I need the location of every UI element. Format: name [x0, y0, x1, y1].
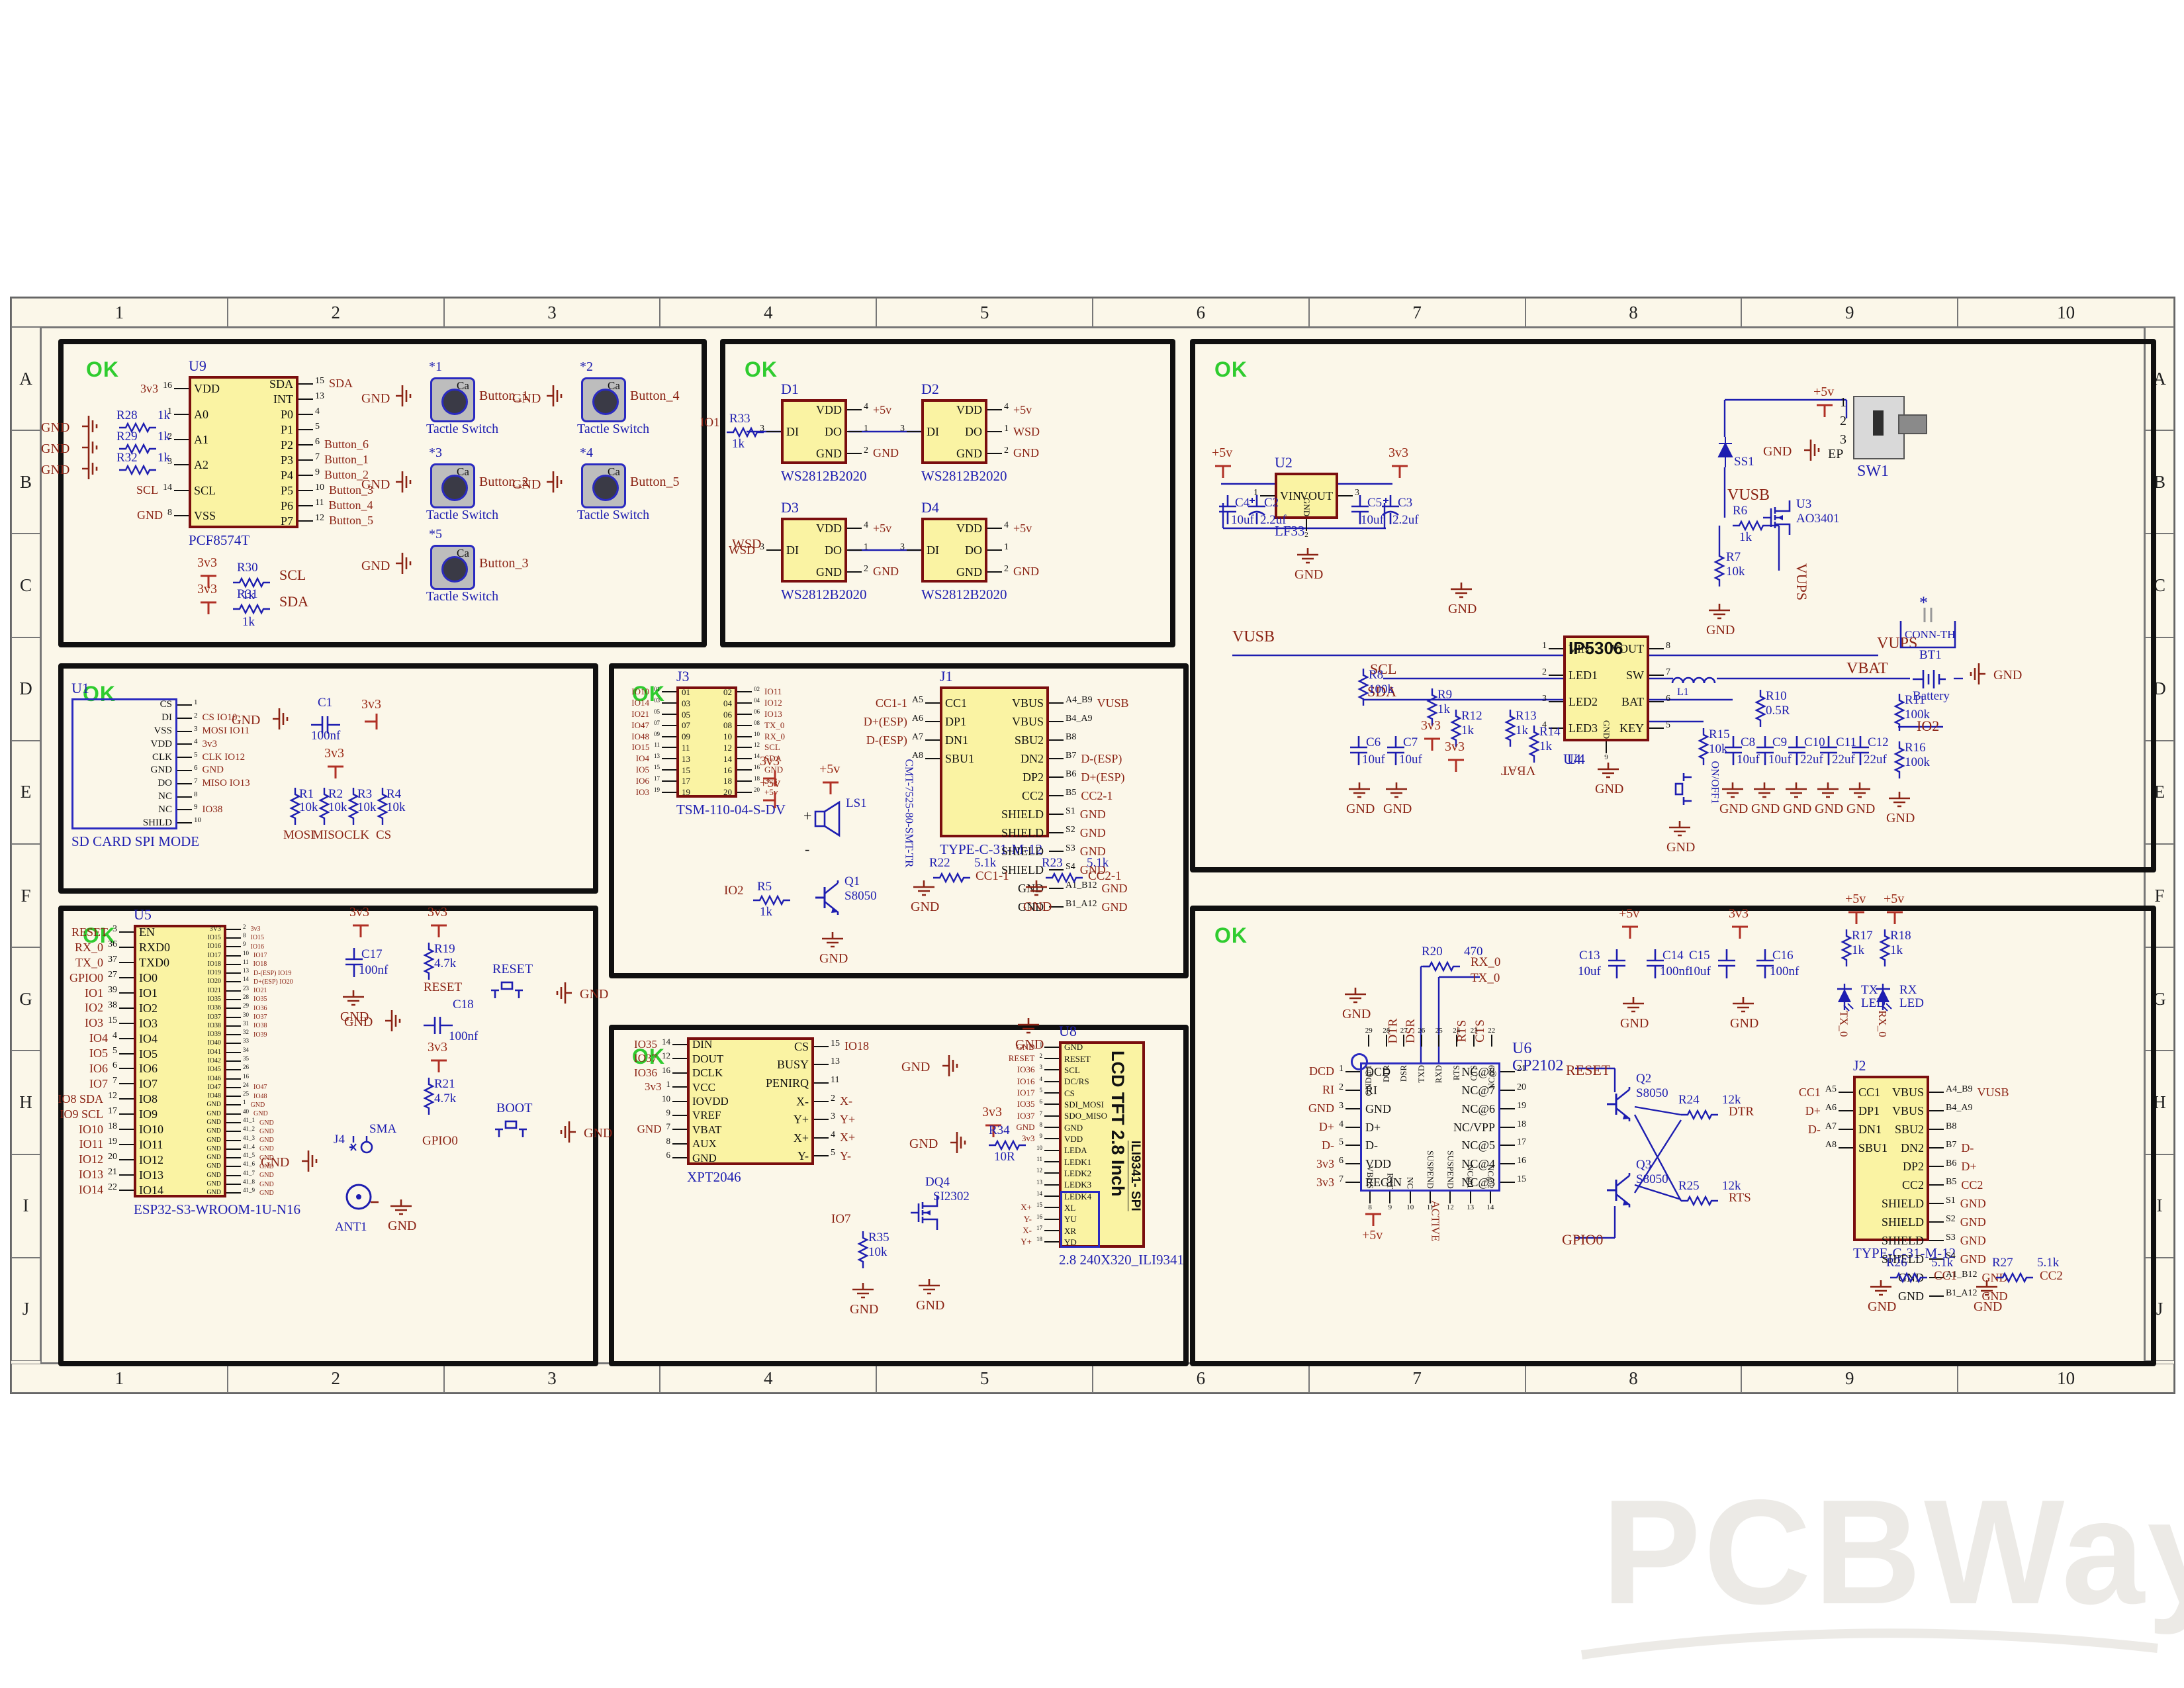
- ic-u4-ip5306-pin-led2: 3: [1437, 696, 1563, 708]
- part-c3-20-label-2-2uf: 2.2uf: [1392, 514, 1419, 526]
- part-c6-38-label-c6: C6: [1366, 736, 1381, 749]
- power-flag-3v3: 3v3: [1388, 446, 1408, 459]
- net-label-vups: VUPS: [1794, 563, 1809, 600]
- ic-u8-lcd-pin-yd: Y+18: [933, 1236, 1059, 1248]
- part-sw1-gnd-icon: [396, 384, 414, 408]
- part-sw3-tactle-switch: Tactle Switch: [426, 508, 498, 522]
- ic-u5-esp32-pin-io14: IO1422: [8, 1184, 134, 1196]
- part-sw1-slide-switch[interactable]: [1853, 396, 1905, 459]
- ic-u6-cp2102-pin-cts: 23: [1469, 1027, 1479, 1062]
- part-io2-77-label-io2: IO2: [724, 884, 744, 897]
- part-btn-88[interactable]: [491, 980, 523, 998]
- ic-j1-typec-pin-gnd: A1_B12GND: [1049, 882, 1175, 894]
- part-c12-52-label-c12: C12: [1868, 736, 1889, 749]
- part-pwr-111[interactable]: [1620, 923, 1640, 939]
- part-sw4-gnd: GND: [512, 478, 541, 491]
- part-r26-129-label-5-1k: 5.1k: [1931, 1256, 1953, 1269]
- part-gnd-30[interactable]: [1804, 438, 1823, 462]
- part-r20-109[interactable]: [1423, 961, 1460, 972]
- part-gnd-1[interactable]: [82, 436, 101, 459]
- part-pwr-34[interactable]: [1446, 756, 1466, 772]
- part-gnd-110-label: GND: [1342, 1008, 1371, 1021]
- part-gnd-2-label: GND: [41, 463, 69, 477]
- ic-j3-header-pin-01: IO1001: [551, 686, 676, 698]
- ic-j1-typec-pin-vbus: A4_B9VUSB: [1049, 697, 1175, 709]
- part-r23-81[interactable]: [1046, 872, 1083, 883]
- part-gnd-82[interactable]: [1024, 880, 1048, 899]
- ok-badge-0: OK: [86, 357, 119, 382]
- part-pwr-21[interactable]: [1390, 462, 1410, 478]
- part-sw2-gnd: GND: [512, 392, 541, 405]
- ic-u6-cp2102-pin-dsr: 27: [1398, 1027, 1409, 1062]
- part-r30-7-label-scl: SCL: [279, 568, 306, 583]
- ic-u1-sdcard-name: SD CARD SPI MODE: [71, 833, 199, 850]
- part-sw2--2: *2: [580, 360, 593, 373]
- ic-xpt2046-pin-vcc: 3v31: [561, 1081, 687, 1093]
- ic-u5-esp32-pin-gnd: 41_9GND: [226, 1187, 352, 1199]
- part-r25-128[interactable]: [1681, 1196, 1718, 1206]
- ic-u9-pcf8574t-pin-p6: 11Button_4: [298, 500, 424, 512]
- net-label-ep: EP: [1828, 447, 1843, 461]
- ic-u5-esp32-pin-rxd0: RX_036: [8, 941, 134, 953]
- ic-u4-ip5306[interactable]: IP5306U41VIN2LED13LED24LED38VOUT7SW6BAT5…: [1563, 635, 1649, 741]
- ic-u6-cp2102-pin-dtr: 28: [1381, 1027, 1392, 1062]
- part-r23-81-label-r23: R23: [1042, 857, 1063, 869]
- part-r13-35[interactable]: [1505, 710, 1516, 747]
- part-l1-43[interactable]: [1672, 673, 1715, 686]
- part-r12-33-label-1k: 1k: [1461, 724, 1474, 737]
- part-pwr-120[interactable]: [1885, 908, 1905, 924]
- part-pwr-119[interactable]: [1846, 908, 1866, 924]
- part-gnd-0[interactable]: [82, 414, 101, 438]
- part-r6-24-label-1k: 1k: [1739, 531, 1752, 543]
- part-pwr-16[interactable]: [1213, 462, 1233, 478]
- ic-j3-header-pin-09: IO4809: [551, 731, 676, 743]
- ic-u8-lcd-pin-ledk2: 12: [933, 1167, 1059, 1179]
- part-r14-36[interactable]: [1529, 726, 1539, 763]
- part-q3-127[interactable]: [1607, 1173, 1636, 1207]
- part-pwr-92[interactable]: [429, 1056, 449, 1072]
- ic-j3-header[interactable]: J3TSM-110-04-S-DVIO100101IO140303IO21050…: [676, 686, 737, 798]
- part-on-off1-46-label-on-off1: ON/OFF1: [1709, 761, 1719, 804]
- part-gnd-22-label: GND: [1295, 568, 1323, 581]
- ic-u5-esp32-ref: U5: [134, 906, 152, 923]
- part-pwr-86[interactable]: [429, 921, 449, 937]
- ic-d3-ws2812b-name: WS2812B2020: [781, 586, 867, 603]
- part-r27-131-label-cc2: CC2: [2040, 1270, 2063, 1282]
- power-flag-+5v: +5v: [1884, 892, 1904, 906]
- part-pwr-73[interactable]: [763, 790, 779, 810]
- ic-u1-sdcard-pin-do: 7MISO IO13: [177, 778, 303, 790]
- part-q1-76-label-q1: Q1: [844, 875, 860, 888]
- part-c7-39-label-10uf: 10uf: [1399, 753, 1422, 766]
- part-gnd-108[interactable]: [942, 1054, 961, 1078]
- net-label--: -: [805, 842, 809, 857]
- part-r21-93[interactable]: [424, 1078, 434, 1115]
- part-j4-96-label-sma: SMA: [369, 1123, 396, 1135]
- part-sw5-tactle-switch: Tactle Switch: [426, 590, 498, 603]
- part-r31-9[interactable]: [233, 604, 270, 614]
- part-rx-124-label-rx: RX: [1899, 984, 1917, 996]
- part-c3-20-label-c3: C3: [1398, 496, 1412, 509]
- ic-u9-pcf8574t-pin-vss: GND8: [63, 510, 189, 522]
- ic-j1-typec-pin-sbu2: B8: [1049, 734, 1175, 746]
- part-gnd-82-label: GND: [1023, 900, 1052, 914]
- ic-u9-pcf8574t-name: PCF8574T: [189, 532, 250, 549]
- ic-u1-sdcard-pin-shild: 10: [177, 817, 303, 829]
- ic-j2-typec-pin-vbus: A4_B9VUSB: [1929, 1086, 2055, 1098]
- ic-u5-esp32-name: ESP32-S3-WROOM-1U-N16: [134, 1201, 300, 1218]
- part-r9-31-label-1k: 1k: [1437, 703, 1450, 716]
- part-rx-124-label-rx-0: RX_0: [1877, 1010, 1888, 1037]
- part-r27-131[interactable]: [1996, 1272, 2033, 1283]
- ic-j3-header-pin-05: IO2105: [551, 708, 676, 720]
- part-u3-27-label-u3: U3: [1796, 498, 1811, 510]
- power-flag-3v3: 3v3: [349, 906, 369, 919]
- power-flag-3v3: 3v3: [760, 755, 780, 768]
- ic-j2-typec[interactable]: J2TYPE-C-31-M-12CC1A5CC1D+A6DP1D-A7DN1A8…: [1853, 1076, 1929, 1241]
- ic-u9-pcf8574t-ref: U9: [189, 357, 206, 375]
- part-q1-76[interactable]: [815, 880, 844, 915]
- part-rx-124-label-led: LED: [1899, 997, 1924, 1009]
- ic-u6-cp2102-pin-d-: D+4: [1234, 1121, 1360, 1133]
- part-sw2-tactle-switch: Tactle Switch: [577, 422, 649, 436]
- ic-xpt2046-pin-dout: IO3712: [561, 1053, 687, 1064]
- part-gnd-78-label: GND: [819, 952, 848, 965]
- part-j4-96[interactable]: [349, 1136, 372, 1158]
- ic-j1-typec-pin-vbus: B4_A9: [1049, 716, 1175, 727]
- part-r31-9-label-sda: SDA: [279, 594, 308, 609]
- part-gnd-114[interactable]: [1621, 997, 1645, 1015]
- part-gnd-80-label: GND: [911, 900, 939, 914]
- part-gnd-118[interactable]: [1731, 997, 1755, 1015]
- ic-u9-pcf8574t[interactable]: U9PCF8574T3v316VDD1A02A13A2SCL14SCLGND8V…: [189, 376, 298, 528]
- part-c13-112[interactable]: [1608, 949, 1625, 978]
- part-conn-62[interactable]: CONN-TH: [1899, 608, 1956, 649]
- power-flag-3v3: 3v3: [361, 698, 381, 711]
- part-gnd-0-label: GND: [41, 421, 69, 434]
- part-r3-70-label-10k: 10k: [357, 801, 377, 814]
- part-r34-106-label-r34: R34: [989, 1124, 1010, 1137]
- ic-j1-typec-pin-dp1: D+(ESP)A6: [814, 716, 940, 727]
- part-gnd-130-label: GND: [1868, 1300, 1896, 1313]
- net-label--: +: [803, 809, 811, 823]
- part-r19-87[interactable]: [424, 943, 434, 980]
- ic-j2-typec-pin-shield: S3GND: [1929, 1235, 2055, 1246]
- part-ls1-74-label-ls1: LS1: [846, 797, 867, 810]
- ic-j1-typec[interactable]: J1TYPE-C-31-M-12CC1-1A5CC1D+(ESP)A6DP1D-…: [940, 686, 1049, 837]
- part-gnd-97-label: GND: [261, 1156, 289, 1169]
- part-sw1-gnd: GND: [361, 392, 390, 405]
- part-r19-87-label-reset: RESET: [424, 981, 462, 994]
- part-r21-93-label-4-7k: 4.7k: [434, 1092, 456, 1105]
- part-gnd-41-label: GND: [1383, 802, 1412, 816]
- part-gnd-132[interactable]: [1975, 1280, 1999, 1299]
- part-r26-129[interactable]: [1890, 1272, 1927, 1283]
- part-gnd-63[interactable]: [1967, 662, 1985, 686]
- part-r16-59[interactable]: [1894, 741, 1905, 778]
- part-gnd-40[interactable]: [1347, 782, 1371, 801]
- part-gnd-103[interactable]: [917, 1279, 941, 1297]
- part-gnd-22[interactable]: [1296, 548, 1320, 567]
- part-r13-35-label-1k: 1k: [1516, 724, 1528, 737]
- part-gnd-99[interactable]: [389, 1199, 413, 1218]
- part-ss1-23-label-ss1: SS1: [1734, 455, 1754, 468]
- part-gnd-85[interactable]: [341, 990, 365, 1009]
- power-flag-+5v: +5v: [1362, 1229, 1383, 1242]
- ic-d2-ws2812b-pin-di: 3: [796, 426, 921, 438]
- ic-xpt2046[interactable]: XPT2046IO3514DINIO3712DOUTIO3616DCLK3v31…: [687, 1037, 814, 1165]
- part-r17-121-label-1k: 1k: [1852, 944, 1864, 957]
- part-r17-121[interactable]: [1841, 929, 1852, 966]
- part-r32-5[interactable]: [119, 465, 156, 475]
- part-r30-7-label-r30: R30: [237, 561, 258, 574]
- ic-d2-ws2812b[interactable]: D2WS2812B20203DI4+5vVDD1WSDDO2GNDGND: [921, 399, 987, 464]
- ic-d4-ws2812b[interactable]: D4WS2812B20203DI4+5vVDD1DO2GNDGND: [921, 518, 987, 583]
- part-c15-116-label-c15: C15: [1689, 949, 1710, 962]
- part-gnd-26[interactable]: [1707, 604, 1731, 622]
- part-r7-25[interactable]: [1714, 549, 1725, 586]
- part-r11-58[interactable]: [1894, 694, 1905, 731]
- part-gnd-89[interactable]: [553, 981, 572, 1005]
- part-gnd-104[interactable]: [1017, 1018, 1040, 1037]
- part-r2-69-label-r2: R2: [328, 788, 343, 800]
- part-gnd-54[interactable]: [1752, 782, 1776, 801]
- part-io1-15-label-io1: IO1: [700, 416, 720, 429]
- part-gnd-101[interactable]: [851, 1283, 875, 1301]
- net-label-1: 1: [1840, 396, 1846, 409]
- schematic-page: PCBWay 12345678910 12345678910 ABCDEFGHI…: [0, 0, 2184, 1688]
- part-c6-38-label-10uf: 10uf: [1362, 753, 1385, 766]
- ic-u9-pcf8574t-pin-p1: 5: [298, 424, 424, 436]
- part-sw2-button-4: Button_4: [630, 389, 679, 402]
- ic-xpt2046-pin-y-: 5Y-: [814, 1150, 940, 1162]
- part-gnd-78[interactable]: [821, 932, 844, 951]
- part-gnd-42-label: GND: [1595, 782, 1623, 796]
- part-gnd-40-label: GND: [1346, 802, 1375, 816]
- part-pwr-115[interactable]: [1730, 923, 1750, 939]
- ic-j1-typec-pin-shield: S2GND: [1049, 827, 1175, 839]
- part-io1-15[interactable]: [727, 427, 764, 438]
- ic-u6-cp2102-pin-suspend: 11: [1425, 1192, 1435, 1227]
- part-c15-116[interactable]: [1718, 949, 1735, 978]
- part-gnd-60[interactable]: [1888, 792, 1911, 810]
- part-r26-129-label-r26: R26: [1886, 1256, 1907, 1269]
- part-gnd-41[interactable]: [1385, 782, 1408, 801]
- part-pwr-29[interactable]: [1815, 401, 1835, 417]
- ic-j3-header-pin-15: IO515: [551, 764, 676, 776]
- part-pwr-32[interactable]: [1422, 735, 1442, 751]
- part-bt1-61[interactable]: [1913, 667, 1946, 691]
- part-pwr-83[interactable]: [351, 921, 371, 937]
- part-pwr-67[interactable]: [326, 763, 345, 778]
- ic-d3-ws2812b-ref: D3: [781, 499, 799, 516]
- part-r32-5-label-r32: R32: [116, 451, 138, 464]
- power-flag-+5v: +5v: [1212, 446, 1232, 459]
- ic-u9-pcf8574t-pin-vdd: 3v316: [63, 383, 189, 395]
- part-c9-49-label-c9: C9: [1772, 736, 1787, 749]
- part-gnd-95-label: GND: [584, 1127, 612, 1140]
- ic-d1-ws2812b-name: WS2812B2020: [781, 468, 867, 485]
- part-r27-131-label-5-1k: 5.1k: [2037, 1256, 2059, 1269]
- ic-u4-ip5306-pin-vout: 8: [1649, 643, 1775, 655]
- part-sw4-gnd-icon: [547, 470, 565, 494]
- ic-j2-typec-pin-dn2: B7D-: [1929, 1142, 2055, 1154]
- part-pwr-66[interactable]: [365, 712, 381, 731]
- part-tx-123[interactable]: [1836, 984, 1853, 1010]
- ic-u5-esp32[interactable]: U5ESP32-S3-WROOM-1U-N16RESET3ENRX_036RXD…: [134, 925, 226, 1197]
- net-label-vbat: VBAT: [1501, 764, 1535, 777]
- part-r30-7[interactable]: [233, 577, 270, 588]
- part-c5-19-label-c5: C5: [1367, 496, 1382, 509]
- ic-j1-typec-pin-shield: S3GND: [1049, 845, 1175, 857]
- part-gnd-97[interactable]: [302, 1149, 320, 1173]
- ic-d4-ws2812b-pin-vdd: 4+5v: [987, 522, 1113, 534]
- part-tx-123-label-tx-0: TX_0: [1838, 1011, 1849, 1037]
- ic-j1-typec-pin-gnd: B1_A12GND: [1049, 901, 1175, 913]
- part-btn-94[interactable]: [495, 1119, 527, 1137]
- part-gnd-91[interactable]: [385, 1009, 404, 1033]
- part-gnd-108-label: GND: [901, 1060, 930, 1074]
- part-gnd-26-label: GND: [1706, 624, 1735, 637]
- ic-xpt2046-pin-x-: 2X-: [814, 1096, 940, 1107]
- part-c7-39-label-c7: C7: [1403, 736, 1418, 749]
- part-pwr-8[interactable]: [199, 598, 218, 614]
- part-gnd-134[interactable]: [1449, 583, 1473, 601]
- part-c14-113-label-c14: C14: [1662, 949, 1684, 962]
- part-gnd-65[interactable]: [273, 707, 291, 731]
- ic-d2-ws2812b-pin-do: 1WSD: [987, 426, 1113, 438]
- part-gnd-55[interactable]: [1784, 782, 1808, 801]
- part-q2-125[interactable]: [1607, 1087, 1636, 1121]
- part-gnd-95[interactable]: [557, 1120, 576, 1144]
- part-ls1-74-label-cmt-7525-80-smt-tr: CMT-7525-80-SMT-TR: [904, 759, 915, 867]
- ic-u1-sdcard-pin-clk: 5CLK IO12: [177, 751, 303, 763]
- part-sw3--3: *3: [429, 446, 442, 459]
- part-r31-9-label-1k: 1k: [242, 616, 255, 628]
- part-gnd-42[interactable]: [1596, 763, 1620, 781]
- part-r35-100-label-r35: R35: [868, 1231, 889, 1244]
- ic-u6-cp2102-pin-rxd: 25: [1433, 1027, 1444, 1062]
- part-r10-44[interactable]: [1755, 690, 1766, 727]
- part-r18-122[interactable]: [1880, 929, 1890, 966]
- part-sw3-gnd: GND: [361, 478, 390, 491]
- ic-j2-typec-pin-dp2: B6D+: [1929, 1160, 2055, 1172]
- ok-badge-7: OK: [1214, 923, 1248, 948]
- net-label-3: 3: [1840, 433, 1846, 446]
- ic-xpt2046-name: XPT2046: [687, 1169, 741, 1186]
- part-gnd-2[interactable]: [82, 457, 101, 481]
- part-gnd-47[interactable]: [1668, 821, 1692, 839]
- ic-xpt2046-pin-gnd: 6: [561, 1152, 687, 1164]
- ic-d4-ws2812b-ref: D4: [921, 499, 939, 516]
- part-gnd-132-label: GND: [1974, 1300, 2002, 1313]
- ic-d2-ws2812b-pin-gnd: 2GND: [987, 447, 1113, 459]
- ic-u2-lf33-ref: U2: [1275, 454, 1293, 471]
- part-r23-81-label-5-1k: 5.1k: [1087, 857, 1109, 869]
- power-flag-3v3: 3v3: [1729, 907, 1749, 920]
- ic-u9-pcf8574t-pin-p3: 7Button_1: [298, 454, 424, 466]
- ic-u2-lf33[interactable]: U2LF331VIN3VOUT2GND: [1275, 473, 1338, 519]
- part-pwr-133[interactable]: [1363, 1210, 1383, 1226]
- part-r10-44-label-r10: R10: [1766, 690, 1787, 702]
- part-gnd-53[interactable]: [1721, 782, 1745, 801]
- ic-u6-cp2102-pin-nc-vpp: 18: [1500, 1121, 1626, 1133]
- ic-u1-sdcard[interactable]: U1SD CARD SPI MODE1CS2CS IO10DI3MOSI IO1…: [71, 698, 177, 829]
- part-gnd-53-label: GND: [1719, 802, 1748, 816]
- part-ls1-74[interactable]: [813, 801, 843, 837]
- part-io2-77-label-1k: 1k: [760, 906, 772, 918]
- ic-u9-pcf8574t-pin-scl: SCL14: [63, 485, 189, 496]
- part-gnd-57[interactable]: [1848, 782, 1872, 801]
- part-gnd-54-label: GND: [1751, 802, 1780, 816]
- part-r29-4-label-r29: R29: [116, 430, 138, 443]
- part-ss1-23[interactable]: [1718, 437, 1733, 467]
- part-io1-15-label-r33: R33: [729, 412, 751, 425]
- part-gnd-55-label: GND: [1783, 802, 1811, 816]
- part-rx-124[interactable]: [1874, 984, 1891, 1010]
- ic-u5-esp32-pin-io0: GPIO027: [8, 972, 134, 984]
- part-gnd-107[interactable]: [950, 1131, 969, 1154]
- ic-u6-cp2102[interactable]: U6CP2102DCD1DCDRI2RIGND3GNDD+4D+D-5D-3v3…: [1360, 1062, 1500, 1192]
- power-flag-+5v: +5v: [1619, 907, 1639, 920]
- part-u3-27[interactable]: [1763, 500, 1792, 535]
- button-label-BOOT: BOOT: [496, 1102, 532, 1115]
- part-r16-59-label-100k: 100k: [1905, 756, 1930, 769]
- part-pwr-75[interactable]: [821, 778, 841, 794]
- ic-j3-header-pin-02: 02IO11: [737, 686, 863, 698]
- ic-u5-esp32-pin-io5: IO55: [8, 1048, 134, 1060]
- part-sw3-gnd-icon: [396, 470, 414, 494]
- part-r3-70-label-clk: CLK: [344, 829, 369, 841]
- part-r19-87-label-r19: R19: [434, 943, 455, 955]
- ic-u8-lcd[interactable]: U82.8 240X320_ILI9341LCD TFT 2.8 InchILI…: [1059, 1041, 1145, 1248]
- part-gnd-80[interactable]: [912, 880, 936, 899]
- part-r24-126-label-dtr: DTR: [1729, 1105, 1754, 1118]
- part-q1-76-label-s8050: S8050: [844, 890, 877, 902]
- part-r8-37[interactable]: [1358, 669, 1369, 706]
- part-r28-3-label-1k: 1k: [158, 409, 170, 422]
- ic-u6-cp2102-pin-nc@9: 22: [1486, 1027, 1497, 1062]
- part-r15-45[interactable]: [1698, 728, 1709, 765]
- part-io2-77[interactable]: [753, 895, 790, 906]
- svg-text:CONN-TH: CONN-TH: [1905, 628, 1956, 641]
- part-r22-79[interactable]: [933, 872, 970, 883]
- part-gnd-56[interactable]: [1816, 782, 1840, 801]
- ic-u5-esp32-pin-io2: IO238: [8, 1002, 134, 1014]
- part-q3-127-label-q3: Q3: [1636, 1158, 1651, 1171]
- part-gnd-104-label: GND: [1015, 1038, 1044, 1051]
- ic-xpt2046-pin-din: IO3514: [561, 1039, 687, 1051]
- part-r34-106[interactable]: [989, 1140, 1026, 1150]
- part-c4-17-label-c4: C4: [1235, 496, 1250, 509]
- part-r35-100[interactable]: [858, 1231, 868, 1268]
- part-gnd-130[interactable]: [1869, 1280, 1893, 1299]
- ic-j2-typec-pin-sbu2: B8: [1929, 1123, 2055, 1135]
- part-r24-126[interactable]: [1681, 1109, 1718, 1120]
- ic-j2-typec-pin-vbus: B4_A9: [1929, 1105, 2055, 1117]
- part-r18-122-label-1k: 1k: [1890, 944, 1903, 957]
- part-gnd-110[interactable]: [1343, 988, 1367, 1006]
- part-ant1-98[interactable]: [344, 1182, 379, 1217]
- part-r22-79-label-cc1-1: CC1-1: [976, 870, 1009, 882]
- ic-j3-header-pin-07: IO4707: [551, 720, 676, 731]
- ic-d4-ws2812b-pin-di: 3: [796, 544, 921, 556]
- part-r6-24-label-r6: R6: [1733, 504, 1747, 517]
- part-on-off1-46[interactable]: [1673, 773, 1692, 805]
- ic-u6-cp2102-pin-vdd: 3v36: [1234, 1158, 1360, 1170]
- ic-j3-header-pin-20: 20+5v: [737, 786, 863, 798]
